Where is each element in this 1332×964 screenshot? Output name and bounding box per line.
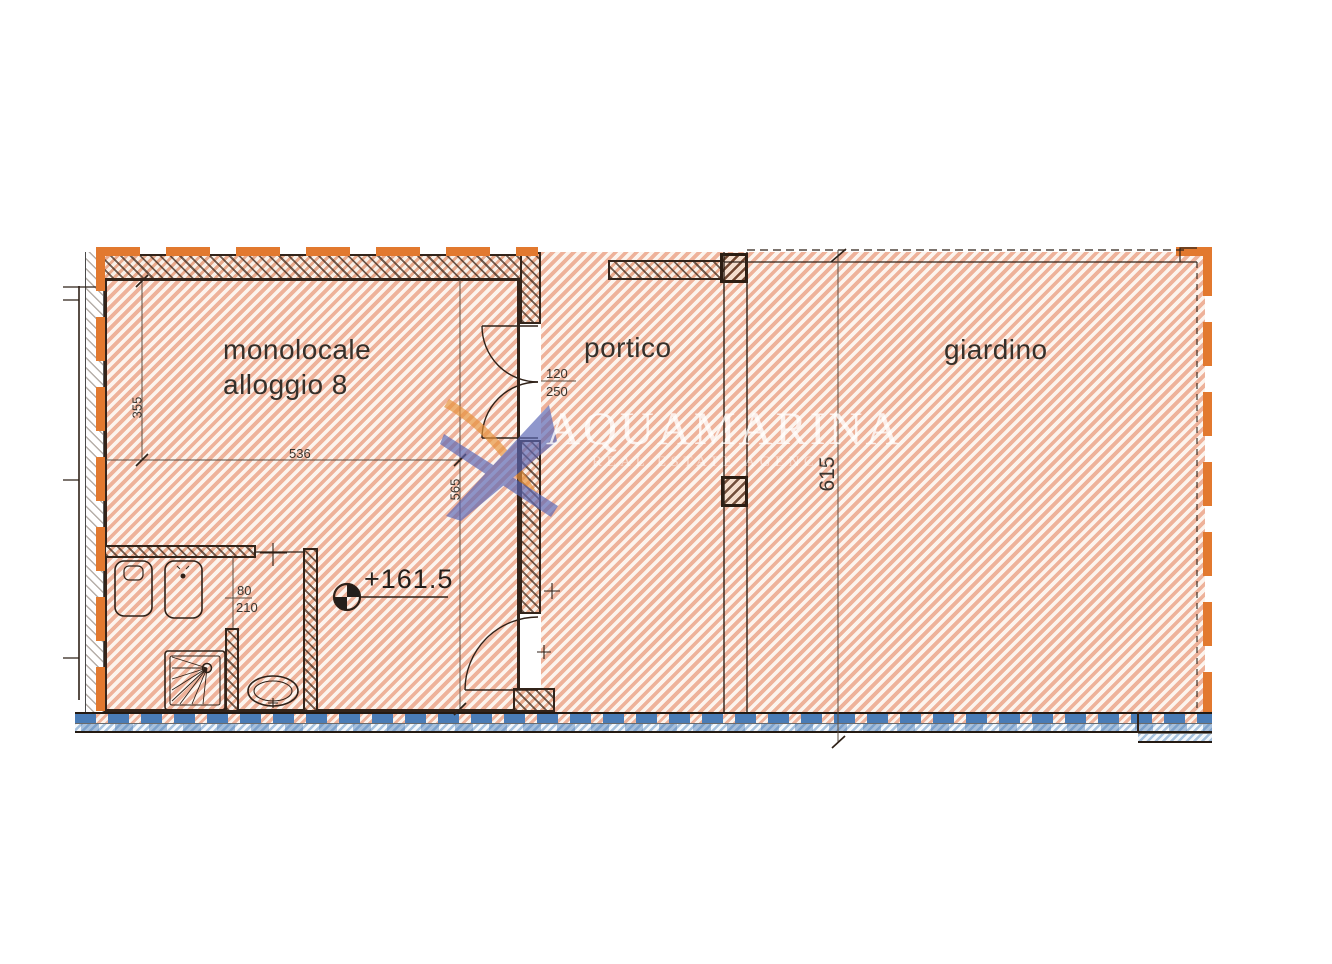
wall-middle-upper: [520, 252, 541, 324]
boundary-orange-right: [1203, 252, 1212, 742]
dim-536: 536: [289, 446, 311, 461]
wall-middle-center: [520, 440, 541, 614]
room-label-giardino: giardino: [944, 332, 1048, 367]
dim-door-120: 120: [546, 366, 568, 381]
wall-bathroom-top: [104, 545, 256, 558]
dim-bath-80: 80: [237, 583, 251, 598]
pillar-middle: [721, 476, 748, 507]
dim-565: 565: [448, 473, 463, 507]
room-label-monolocale: monolocale alloggio 8: [223, 332, 371, 402]
wall-portico-top: [608, 260, 724, 280]
insulation-band-right-ext: [1138, 733, 1212, 743]
insulation-band-light: [75, 723, 1212, 733]
insulation-band-blue: [75, 712, 1212, 723]
dim-door-250: 250: [546, 384, 568, 399]
area-portico-giardino: [541, 252, 1205, 712]
pillar-top: [720, 253, 748, 283]
wall-top-monolocale: [100, 254, 541, 280]
wall-shower-partition: [225, 628, 239, 712]
boundary-orange-left: [96, 247, 105, 717]
dim-355: 355: [130, 391, 145, 425]
floor-plan-canvas: monolocale alloggio 8 portico giardino 3…: [0, 0, 1332, 964]
wall-middle-bottom-step: [513, 688, 555, 712]
watermark-tagline: REAL ESTATE AGENCY: [592, 454, 834, 471]
wall-bathroom-partition: [303, 548, 318, 712]
boundary-orange-top: [96, 247, 538, 256]
watermark-brand: AQUAMARINA: [546, 402, 902, 456]
dim-bath-210: 210: [236, 600, 258, 615]
elevation-label: +161.5: [364, 564, 453, 595]
room-label-portico: portico: [584, 330, 672, 365]
